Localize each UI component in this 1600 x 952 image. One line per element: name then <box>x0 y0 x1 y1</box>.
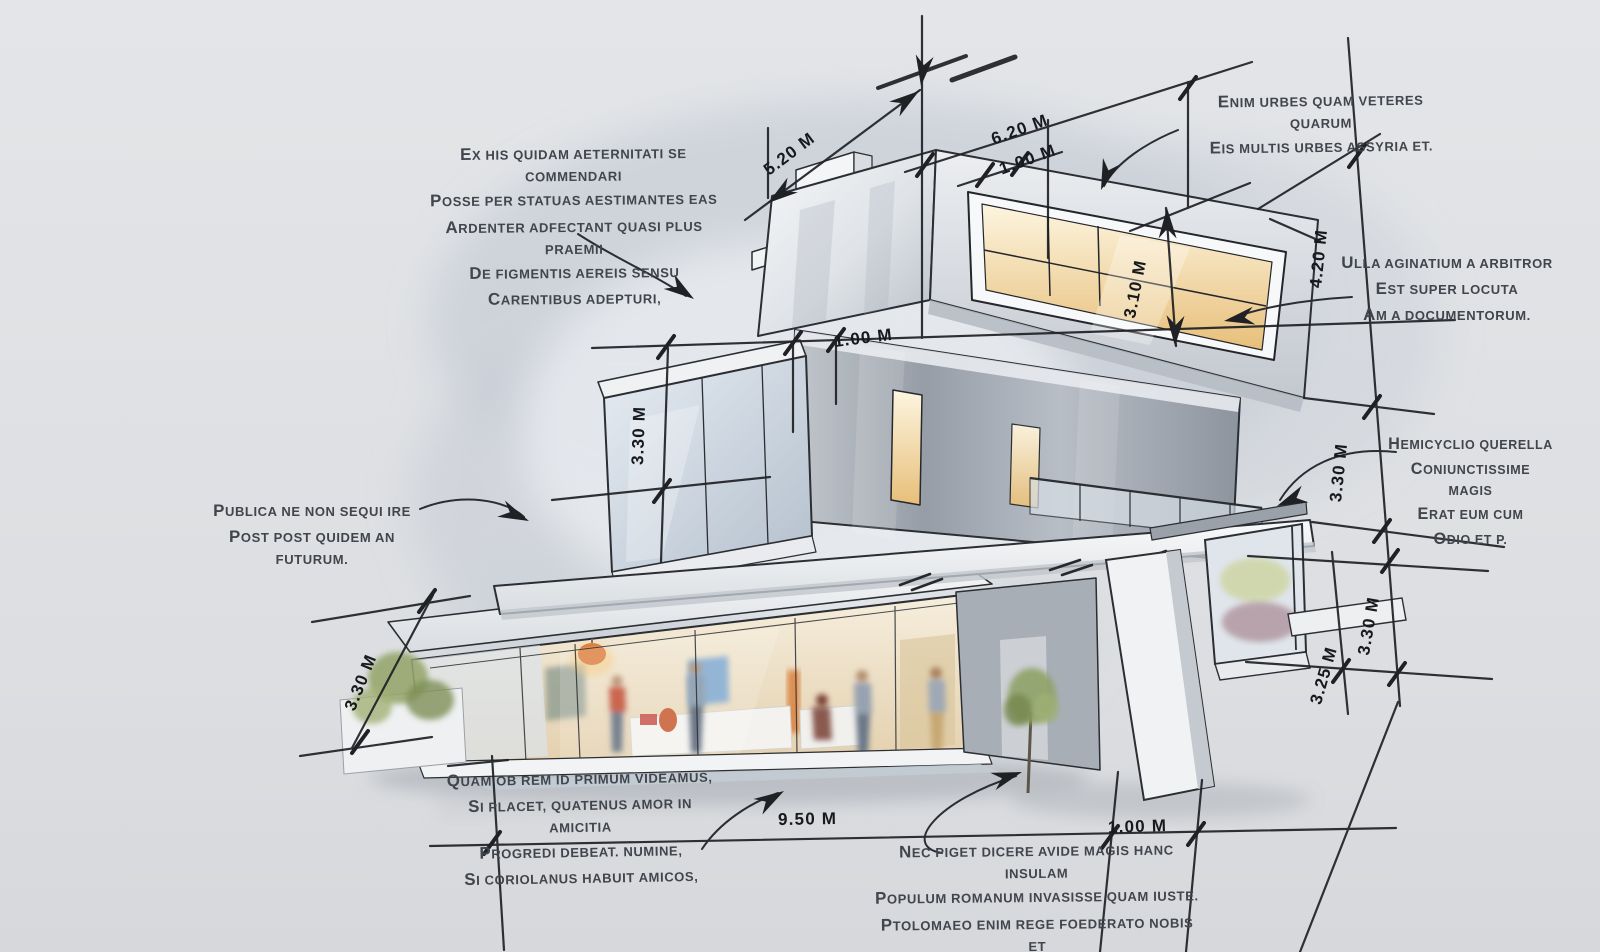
annotation-line: Ptolomaeo enim rege foederato nobis et <box>872 909 1202 952</box>
sketch-canvas: Ex his quidam aeternitati se commendari … <box>0 0 1600 952</box>
annotation-right-upper: Ulla aginatium a arbitror est super locu… <box>1332 250 1562 329</box>
dimension-label-mid-floor-height: 3.30 m <box>628 406 650 466</box>
annotation-line: post post quidem an futurum. <box>192 524 432 570</box>
annotation-line: Nec piget dicere avide magis hanc insula… <box>871 836 1201 886</box>
annotation-right-middle: Hemicyclio querella coniunctissime magis… <box>1388 432 1553 552</box>
annotation-line: Ulla aginatium a arbitror <box>1332 250 1562 276</box>
annotation-line: erat eum cum <box>1388 502 1553 527</box>
annotation-line: populum Romanum invasisse quam iuste. <box>872 883 1202 913</box>
dimension-label-base-width: 9.50 m <box>778 809 838 830</box>
annotation-line: carentibus adepturi, <box>419 285 731 314</box>
annotation-line: de figmentis aereis sensu <box>418 259 730 288</box>
annotation-line: Publica ne non sequi ire <box>192 498 432 524</box>
annotation-top-left: Ex his quidam aeternitati se commendari … <box>417 140 730 314</box>
annotation-line: est super locuta <box>1332 276 1562 302</box>
annotation-left-middle: Publica ne non sequi ire post post quide… <box>192 498 432 571</box>
annotation-line: coniunctissime magis <box>1388 457 1553 502</box>
annotation-line: eis multis urbes Assyria et. <box>1186 132 1456 162</box>
annotation-line: si Coriolanus habuit amicos, <box>439 862 724 893</box>
annotation-line: ardenter adfectant quasi plus praemii <box>418 212 730 261</box>
annotation-line: Ex his quidam aeternitati se commendari <box>417 140 729 189</box>
annotation-line: am a documentorum. <box>1332 302 1562 328</box>
support-pillar <box>1106 550 1214 800</box>
annotation-bottom-right: Nec piget dicere avide magis hanc insula… <box>871 836 1203 952</box>
annotation-line: Hemicyclio querella <box>1388 432 1553 457</box>
annotation-line: odio et P. <box>1388 527 1553 552</box>
annotation-line: Enim urbes quam veteres quarum <box>1186 86 1457 136</box>
annotation-bottom-center: Quam ob rem id primum videamus, si place… <box>437 764 724 894</box>
annotation-top-right: Enim urbes quam veteres quarum eis multi… <box>1186 86 1457 162</box>
annotation-line: posse per statuas aestimantes eas <box>418 186 730 215</box>
warm-window <box>891 390 922 505</box>
dimension-label-base-offset: 1.00 m <box>1108 816 1168 838</box>
annotation-line: si placet, quatenus amor in amicitia <box>437 790 723 841</box>
